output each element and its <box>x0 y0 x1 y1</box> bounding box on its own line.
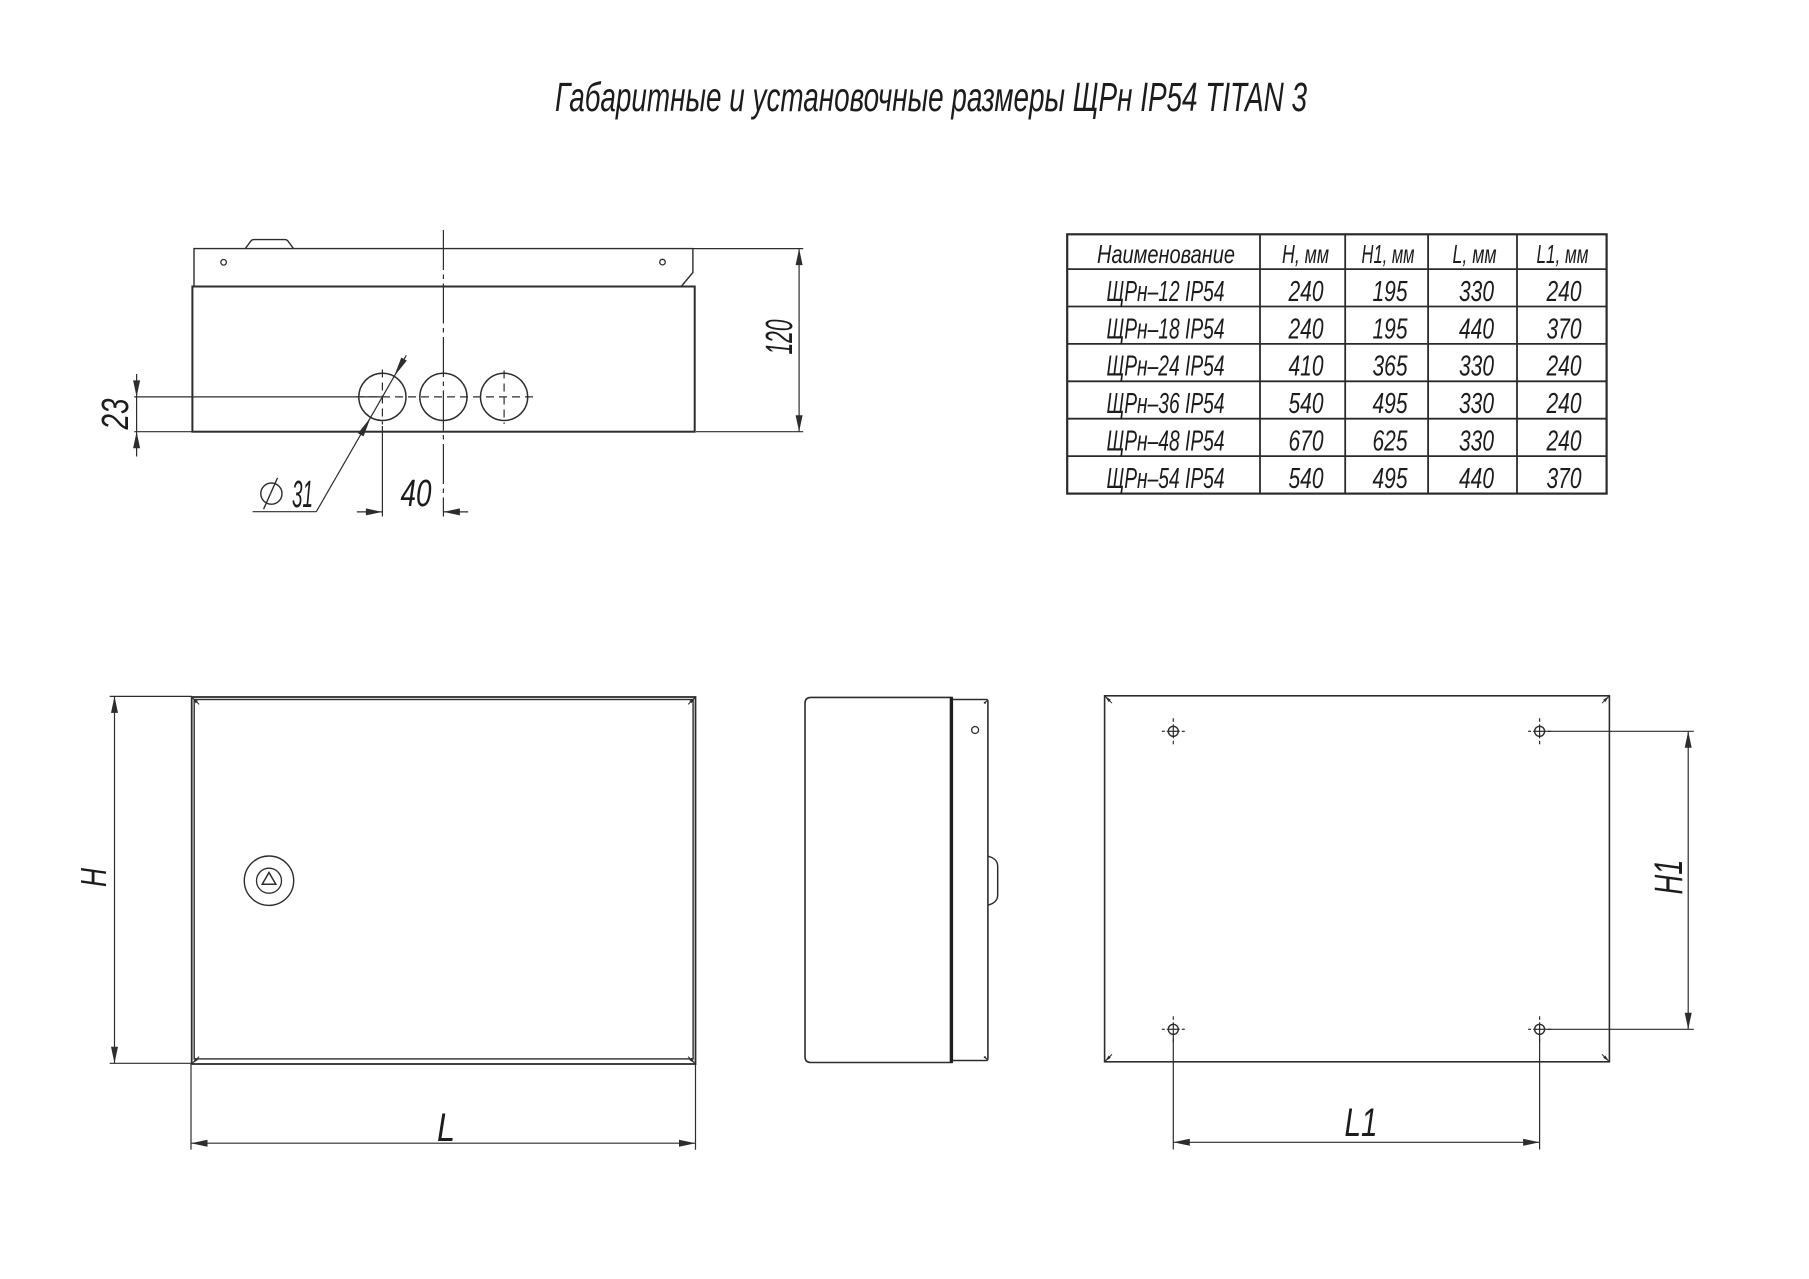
svg-text:370: 370 <box>1547 313 1582 345</box>
svg-text:240: 240 <box>1546 426 1582 458</box>
svg-text:240: 240 <box>1546 351 1582 383</box>
svg-text:495: 495 <box>1373 463 1409 495</box>
svg-text:240: 240 <box>1288 276 1324 308</box>
svg-text:440: 440 <box>1459 463 1494 495</box>
svg-text:410: 410 <box>1289 351 1324 383</box>
svg-text:540: 540 <box>1289 388 1324 420</box>
svg-text:330: 330 <box>1459 388 1494 420</box>
svg-text:L1: L1 <box>1345 1101 1378 1145</box>
svg-text:240: 240 <box>1546 276 1582 308</box>
svg-text:Габаритные и установочные разм: Габаритные и установочные размеры ЩРн IP… <box>555 74 1307 120</box>
svg-text:L, мм: L, мм <box>1453 239 1497 269</box>
svg-text:40: 40 <box>401 473 432 515</box>
svg-text:195: 195 <box>1373 313 1409 345</box>
svg-text:330: 330 <box>1459 276 1494 308</box>
svg-text:495: 495 <box>1373 388 1409 420</box>
svg-text:Наименование: Наименование <box>1097 239 1235 269</box>
svg-text:195: 195 <box>1373 276 1409 308</box>
svg-text:365: 365 <box>1373 351 1409 383</box>
svg-text:ЩРн–54 IP54: ЩРн–54 IP54 <box>1107 463 1225 495</box>
svg-text:ЩРн–24 IP54: ЩРн–24 IP54 <box>1107 351 1225 383</box>
svg-text:ЩРн–36 IP54: ЩРн–36 IP54 <box>1107 388 1225 420</box>
svg-text:23: 23 <box>95 399 137 431</box>
svg-text:L1, мм: L1, мм <box>1537 239 1589 269</box>
svg-text:330: 330 <box>1459 426 1494 458</box>
svg-text:ЩРн–48 IP54: ЩРн–48 IP54 <box>1107 426 1225 458</box>
svg-text:ЩРн–18 IP54: ЩРн–18 IP54 <box>1107 313 1225 345</box>
svg-text:625: 625 <box>1373 426 1409 458</box>
svg-text:120: 120 <box>759 320 801 355</box>
svg-text:670: 670 <box>1289 426 1324 458</box>
svg-text:H, мм: H, мм <box>1282 239 1329 269</box>
svg-text:31: 31 <box>292 474 313 516</box>
svg-text:240: 240 <box>1288 313 1324 345</box>
svg-text:370: 370 <box>1547 463 1582 495</box>
svg-text:540: 540 <box>1289 463 1324 495</box>
svg-text:ЩРн–12 IP54: ЩРн–12 IP54 <box>1107 276 1225 308</box>
svg-text:H1: H1 <box>1647 860 1691 895</box>
svg-text:H1, мм: H1, мм <box>1362 239 1415 269</box>
svg-text:H: H <box>73 867 114 887</box>
svg-text:L: L <box>437 1106 455 1150</box>
svg-text:240: 240 <box>1546 388 1582 420</box>
svg-text:440: 440 <box>1459 313 1494 345</box>
svg-text:330: 330 <box>1459 351 1494 383</box>
